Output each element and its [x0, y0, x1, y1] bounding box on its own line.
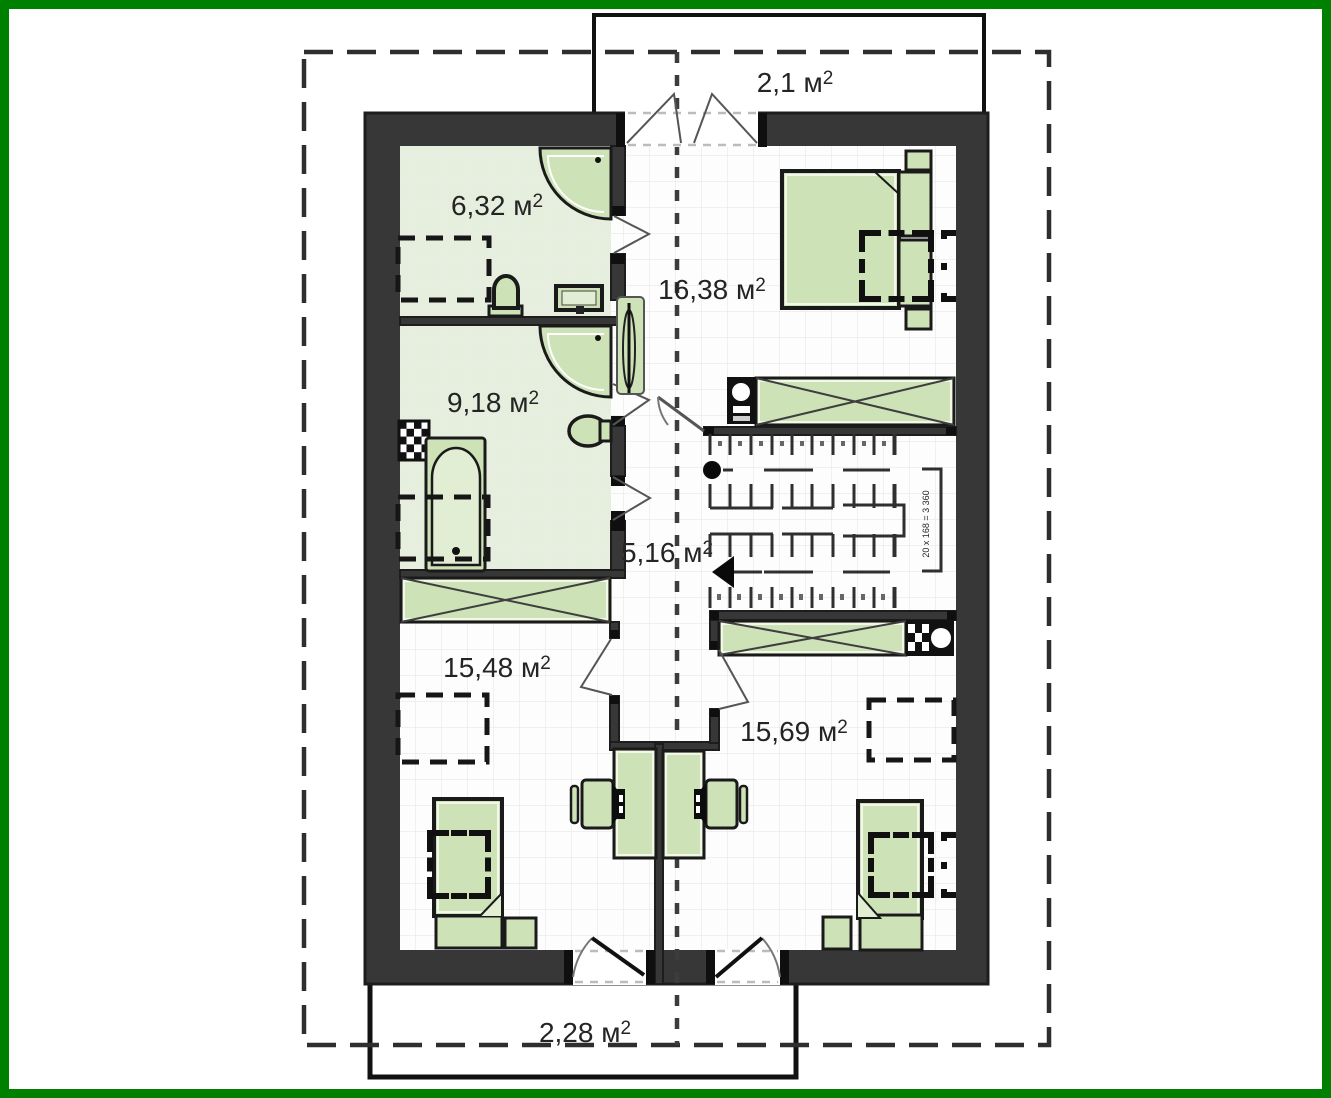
svg-text:20 x 168 = 3 360: 20 x 168 = 3 360 — [921, 490, 931, 557]
svg-text:5,16 м2: 5,16 м2 — [621, 537, 713, 568]
svg-text:6,32 м2: 6,32 м2 — [451, 190, 543, 221]
svg-text:15,69 м2: 15,69 м2 — [740, 716, 848, 747]
svg-text:9,18 м2: 9,18 м2 — [447, 387, 539, 418]
svg-text:15,48 м2: 15,48 м2 — [443, 652, 551, 683]
svg-text:2,1 м2: 2,1 м2 — [757, 67, 834, 98]
svg-text:16,38 м2: 16,38 м2 — [658, 274, 766, 305]
svg-text:2,28 м2: 2,28 м2 — [539, 1017, 631, 1048]
